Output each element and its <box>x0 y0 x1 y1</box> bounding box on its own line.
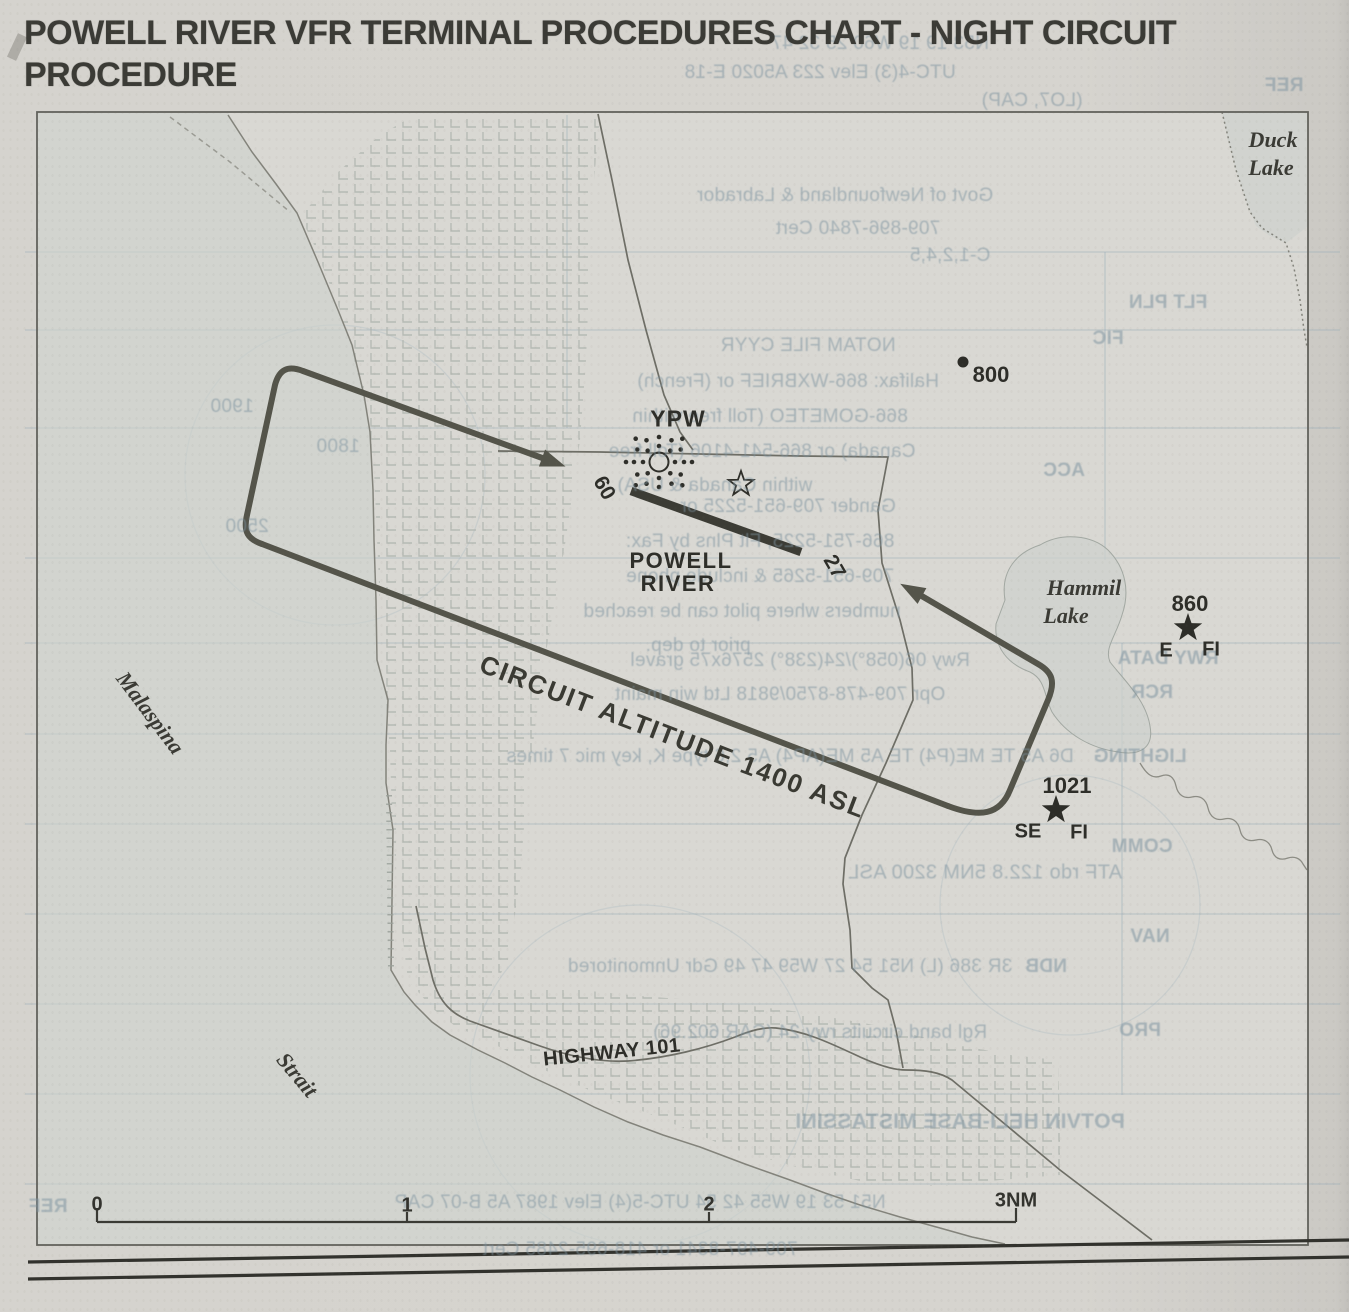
bleed-through-text: NDB <box>1025 956 1067 978</box>
beacon-860-label: 860 <box>1172 591 1209 617</box>
bleed-through-text: Rwy 06(058°)/24(238°) 2576x75 gravel <box>630 650 970 672</box>
bleed-through-text: numbers where pilot can be reached <box>583 601 901 623</box>
bleed-through-text: 2500 <box>225 516 268 538</box>
scale-tick-3nm: 3NM <box>995 1190 1037 1213</box>
bleed-through-text: FLT PLN <box>1129 292 1208 314</box>
bleed-through-text: REF <box>29 1196 68 1218</box>
scale-tick-0: 0 <box>91 1194 102 1217</box>
bleed-through-text: 1800 <box>316 436 359 458</box>
bleed-through-text: Opr 709-478-8750/9818 Ltd win maint <box>615 684 946 706</box>
bleed-through-text: 3R 386 (L) N51 54 27 W59 47 49 Gdr Unmon… <box>568 956 1013 978</box>
duck-lake-label-line1: Duck <box>1249 127 1298 153</box>
bleed-through-text: 1900 <box>210 396 253 418</box>
bleed-through-text: REF <box>1265 75 1304 97</box>
bleed-through-text: C-1,2,4,5 <box>910 245 991 267</box>
bleed-through-text: Canada) or 866-541-4106 (Toll free <box>609 441 916 463</box>
bleed-through-text: NAV <box>1130 926 1170 948</box>
obstacle-800-label: 800 <box>973 362 1010 388</box>
scale-tick-2: 2 <box>703 1194 714 1217</box>
beacon-860-e-label: E <box>1159 640 1172 663</box>
bleed-through-text: within Canada & USA). <box>612 475 813 497</box>
bleed-through-text: NOTAM FILE CYYR <box>720 335 895 357</box>
bleed-through-text: UTC-4(3) Elev 223 A5020 E-18 <box>684 62 955 84</box>
duck-lake-label-line2: Lake <box>1248 155 1293 181</box>
airport-code-label: YPW <box>650 406 705 433</box>
bleed-through-text: ATF rdo 122.8 5NM 3200 ASL <box>848 862 1122 885</box>
scale-tick-1: 1 <box>401 1195 412 1218</box>
bleed-through-text: Rgl band circuits rwy 24 (CAR 602.96) <box>653 1022 987 1044</box>
bleed-through-text: POTVIN HELI-BASE MISTASSINI <box>795 1110 1125 1134</box>
city-name-line2: RIVER <box>641 571 716 597</box>
hammil-lake-label-line2: Lake <box>1043 603 1088 629</box>
obstacle-800-dot <box>958 357 969 368</box>
scanned-chart-page: N53 19 19 W60 25 32 47UTC-4(3) Elev 223 … <box>0 0 1349 1312</box>
beacon-1021-se-label: SE <box>1015 821 1042 844</box>
bleed-through-text: Halifax: 866-WXBRIEF or (French) <box>637 371 939 393</box>
bleed-through-text: (LO7, CAP) <box>981 90 1082 112</box>
chart-title-line2: PROCEDURE <box>24 56 237 95</box>
bleed-through-text: RCR <box>1131 682 1173 704</box>
bleed-through-text: LIGHTING <box>1093 746 1186 768</box>
bleed-through-text: PRO <box>1119 1020 1161 1042</box>
bleed-through-text: Gander 709-651-5225 or <box>680 496 896 518</box>
bleed-through-text: Govt of Newfoundland & Labrador <box>697 185 994 207</box>
bleed-through-text: ACC <box>1043 460 1085 482</box>
bleed-through-text: N51 53 19 W55 42 54 UTC-5(4) Elev 1987 A… <box>394 1192 885 1214</box>
hammil-lake-label-line1: Hammil <box>1047 575 1122 601</box>
beacon-1021-label: 1021 <box>1043 773 1092 799</box>
beacon-860-fi-label: FI <box>1202 639 1220 662</box>
bleed-through-text: FIC <box>1092 328 1124 350</box>
chart-title-line1: POWELL RIVER VFR TERMINAL PROCEDURES CHA… <box>24 14 1176 53</box>
bleed-through-text: 709-896-7840 Cert <box>776 218 941 240</box>
beacon-1021-fi-label: FI <box>1070 822 1088 845</box>
bleed-through-text: 709-497-8341 or 418-695-2485 Cert <box>482 1239 797 1261</box>
bleed-through-text: COMM <box>1111 836 1172 858</box>
